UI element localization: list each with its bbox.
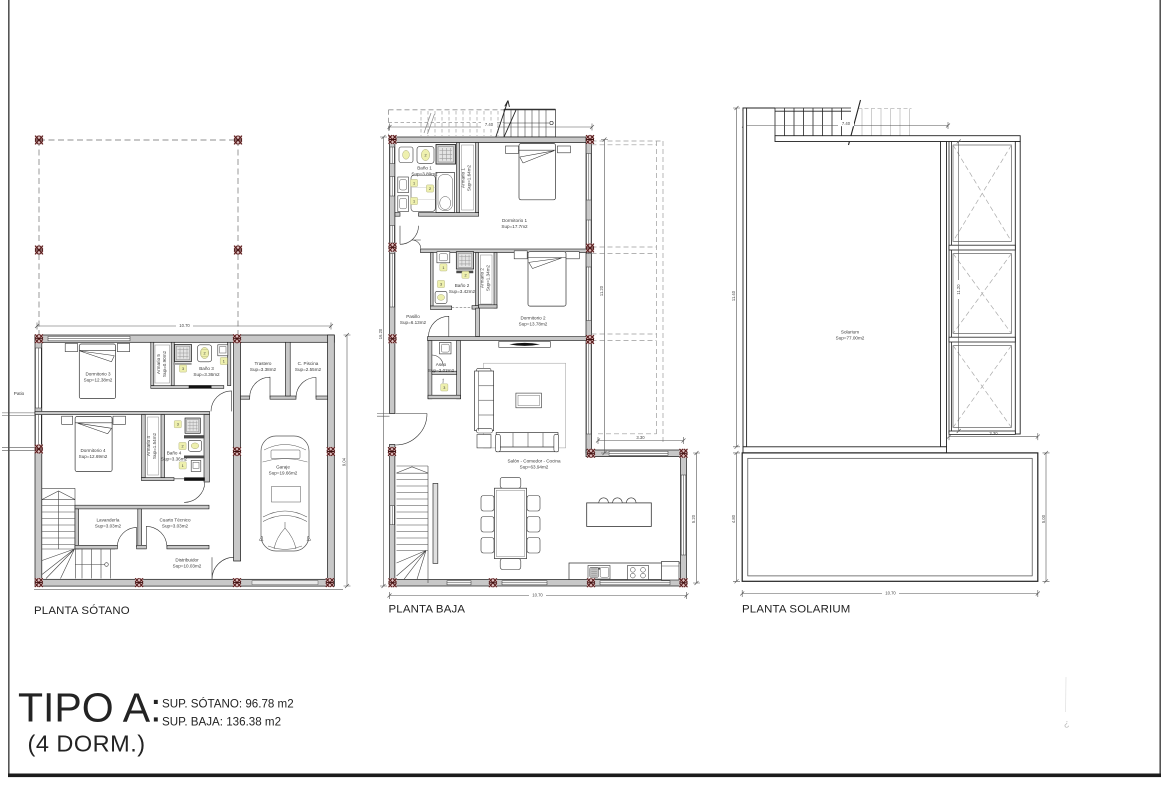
svg-text:Lavandería: Lavandería — [97, 517, 120, 522]
svg-text:Dormitorio 3: Dormitorio 3 — [85, 372, 110, 377]
svg-text:Sup=12.69m2: Sup=12.69m2 — [79, 454, 108, 459]
svg-text:PLANTA BAJA: PLANTA BAJA — [389, 604, 466, 616]
svg-text:3: 3 — [440, 283, 442, 287]
svg-text:Armario 5: Armario 5 — [156, 354, 161, 374]
svg-text:10.70: 10.70 — [885, 590, 896, 595]
svg-text:Sup=1.54m2: Sup=1.54m2 — [152, 432, 157, 459]
svg-text:Baño 1: Baño 1 — [417, 166, 432, 171]
svg-text:16.20: 16.20 — [378, 328, 383, 339]
svg-text:11.20: 11.20 — [599, 285, 604, 296]
svg-text:Sup=12.38m2: Sup=12.38m2 — [84, 378, 113, 383]
svg-text:11.20: 11.20 — [956, 284, 961, 295]
svg-text:SUP. BAJA: 136.38 m2: SUP. BAJA: 136.38 m2 — [162, 716, 281, 729]
svg-text:3: 3 — [443, 386, 445, 390]
svg-text:Baño 4: Baño 4 — [167, 451, 182, 456]
svg-text:Sup=2.55m2: Sup=2.55m2 — [295, 367, 322, 372]
svg-text:Sup=0.90m2: Sup=0.90m2 — [162, 350, 167, 377]
svg-text:2: 2 — [464, 273, 466, 277]
svg-text:Sup=19.66m2: Sup=19.66m2 — [269, 471, 298, 476]
svg-text:¿: ¿ — [1064, 718, 1070, 728]
svg-text:Sup=3.38m2: Sup=3.38m2 — [250, 367, 277, 372]
svg-text:2: 2 — [181, 445, 183, 449]
svg-text:1: 1 — [442, 266, 444, 270]
svg-text:SUP. SÓTANO: 96.78 m2: SUP. SÓTANO: 96.78 m2 — [162, 698, 294, 711]
svg-text:Sup=3.03m2: Sup=3.03m2 — [95, 523, 122, 528]
svg-text:Sup=2.03m2: Sup=2.03m2 — [428, 368, 455, 373]
svg-text:Dormitorio 1: Dormitorio 1 — [502, 218, 527, 223]
svg-text:3: 3 — [177, 423, 179, 427]
svg-text:Patio: Patio — [14, 391, 25, 396]
svg-text:2: 2 — [429, 187, 431, 191]
svg-text:3: 3 — [182, 367, 184, 371]
svg-text:3.30: 3.30 — [989, 431, 998, 436]
svg-text:9.04: 9.04 — [341, 457, 346, 466]
svg-text:10.70: 10.70 — [532, 592, 543, 597]
svg-text:10.70: 10.70 — [179, 323, 190, 328]
svg-text:Solarium: Solarium — [841, 330, 859, 335]
svg-text:Sup=6.13m2: Sup=6.13m2 — [400, 320, 427, 325]
svg-text:Armario 2: Armario 2 — [480, 268, 485, 288]
svg-text:Baño 3: Baño 3 — [199, 366, 214, 371]
svg-text:Aseo: Aseo — [436, 362, 447, 367]
svg-text:Dormitorio 2: Dormitorio 2 — [520, 316, 545, 321]
svg-text:7.40: 7.40 — [485, 122, 494, 127]
svg-text:Sup=63.94m2: Sup=63.94m2 — [520, 465, 549, 470]
svg-text:PLANTA SOLARIUM: PLANTA SOLARIUM — [742, 604, 851, 616]
svg-text:7.40: 7.40 — [842, 121, 851, 126]
svg-text:Sup=3.36m2: Sup=3.36m2 — [193, 372, 220, 377]
svg-text:Sup=13.78m2: Sup=13.78m2 — [519, 322, 548, 327]
svg-text:PLANTA SÓTANO: PLANTA SÓTANO — [34, 604, 130, 617]
svg-text:Garaje: Garaje — [276, 465, 290, 470]
svg-text:Sup=1.64m2: Sup=1.64m2 — [466, 164, 471, 191]
svg-text:Sup=77.00m2: Sup=77.00m2 — [836, 336, 865, 341]
svg-text:Armario 1: Armario 1 — [461, 168, 466, 188]
svg-text:Sup=10.03m2: Sup=10.03m2 — [173, 563, 202, 568]
svg-text:Sup=3.89m2: Sup=3.89m2 — [411, 172, 438, 177]
svg-text:2: 2 — [204, 352, 206, 356]
svg-text:3.30: 3.30 — [636, 435, 645, 440]
svg-text:C. Piscina: C. Piscina — [298, 361, 319, 366]
svg-text:Baño 2: Baño 2 — [455, 283, 470, 288]
svg-text:11.40: 11.40 — [731, 290, 736, 301]
svg-text:Sup=3.03m2: Sup=3.03m2 — [162, 523, 189, 528]
svg-text:1: 1 — [413, 200, 415, 204]
svg-text:2: 2 — [424, 154, 426, 158]
svg-text:Sup=17.7m2: Sup=17.7m2 — [501, 224, 528, 229]
svg-text:Pasillo: Pasillo — [406, 314, 420, 319]
svg-text:Dormitorio 4: Dormitorio 4 — [80, 448, 105, 453]
svg-text:TIPO A:: TIPO A: — [18, 685, 162, 731]
svg-text:(4 DORM.): (4 DORM.) — [28, 731, 146, 757]
svg-text:1: 1 — [413, 182, 415, 186]
svg-text:1: 1 — [182, 464, 184, 468]
svg-text:Sup=1.34m2: Sup=1.34m2 — [485, 264, 490, 291]
svg-text:Salón - Comedor - Cocina: Salón - Comedor - Cocina — [507, 459, 561, 464]
svg-text:Sup=3.36m2: Sup=3.36m2 — [161, 457, 188, 462]
svg-text:5.00: 5.00 — [1041, 514, 1046, 523]
svg-text:Cuarto Técnico: Cuarto Técnico — [159, 517, 191, 522]
svg-text:1: 1 — [223, 360, 225, 364]
svg-text:Trastero: Trastero — [255, 361, 272, 366]
svg-text:4.80: 4.80 — [731, 514, 736, 523]
svg-text:Distribuidor: Distribuidor — [175, 557, 199, 562]
svg-text:5.20: 5.20 — [691, 514, 696, 523]
svg-text:Sup=3.42m2: Sup=3.42m2 — [449, 289, 476, 294]
svg-text:Armario 4: Armario 4 — [146, 436, 151, 456]
